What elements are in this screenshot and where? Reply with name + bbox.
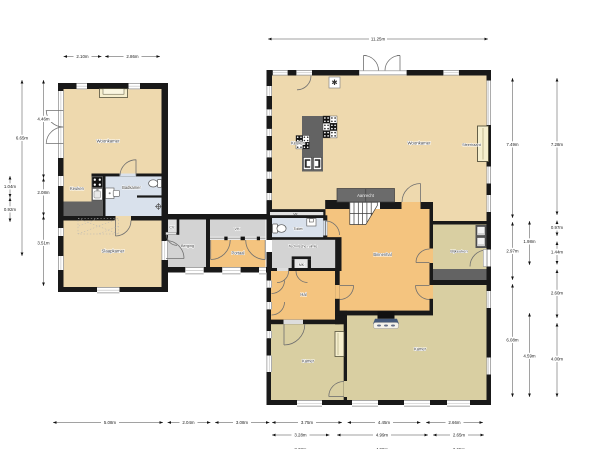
svg-text:5.08m: 5.08m [104,420,117,425]
svg-text:Aanrecht: Aanrecht [357,193,375,198]
svg-text:Slaapkamer: Slaapkamer [102,249,125,254]
svg-text:3.51m: 3.51m [37,241,50,246]
svg-text:2.10m: 2.10m [76,54,89,59]
svg-text:Binnenhal: Binnenhal [373,252,391,257]
svg-text:VK: VK [234,226,240,231]
svg-text:4.45m: 4.45m [378,420,391,425]
svg-text:2.60m: 2.60m [551,291,564,296]
svg-text:7.28m: 7.28m [551,142,564,147]
svg-text:1.98m: 1.98m [523,239,536,244]
svg-text:Woonkamer: Woonkamer [96,139,120,144]
svg-text:Technische ruimte: Technische ruimte [289,245,318,249]
svg-text:Portaal: Portaal [232,251,245,256]
svg-text:Toilet: Toilet [293,226,303,231]
svg-text:3.28m: 3.28m [294,433,307,438]
svg-text:✱: ✱ [331,78,338,87]
svg-text:Kamer: Kamer [414,347,427,352]
svg-text:2.66m: 2.66m [448,420,461,425]
svg-text:Keuken: Keuken [291,141,306,146]
svg-text:Kamer: Kamer [302,359,315,364]
svg-text:1.44m: 1.44m [551,250,564,255]
svg-text:Woonkamer: Woonkamer [407,141,431,146]
svg-text:4.99m: 4.99m [376,433,389,438]
svg-text:Badkamer: Badkamer [122,185,141,190]
svg-text:2.97m: 2.97m [506,249,519,254]
svg-text:4.59m: 4.59m [523,354,536,359]
svg-text:VK: VK [293,212,298,216]
svg-text:Hal: Hal [300,292,306,297]
svg-text:Berging: Berging [181,244,194,248]
svg-text:3.75m: 3.75m [301,420,314,425]
svg-text:MK: MK [299,263,305,267]
svg-text:2.04m: 2.04m [182,420,195,425]
svg-text:4.46m: 4.46m [37,117,50,122]
svg-text:Sfeerhaard: Sfeerhaard [462,143,481,147]
svg-text:4.00m: 4.00m [551,357,564,362]
svg-text:2.65m: 2.65m [453,433,466,438]
svg-text:1.04m: 1.04m [4,184,17,189]
svg-text:7.49m: 7.49m [506,142,519,147]
svg-text:Bijkeuken: Bijkeuken [450,249,467,254]
svg-text:3.08m: 3.08m [236,420,249,425]
svg-text:Keuken: Keuken [70,186,85,191]
svg-text:11.25m: 11.25m [371,37,386,42]
svg-text:CV: CV [169,225,175,229]
svg-text:6.65m: 6.65m [16,136,29,141]
svg-text:2.86m: 2.86m [126,54,139,59]
svg-text:0.92m: 0.92m [4,207,17,212]
svg-text:6.08m: 6.08m [506,338,519,343]
svg-text:2.08m: 2.08m [37,190,50,195]
svg-text:0.97m: 0.97m [551,225,564,230]
